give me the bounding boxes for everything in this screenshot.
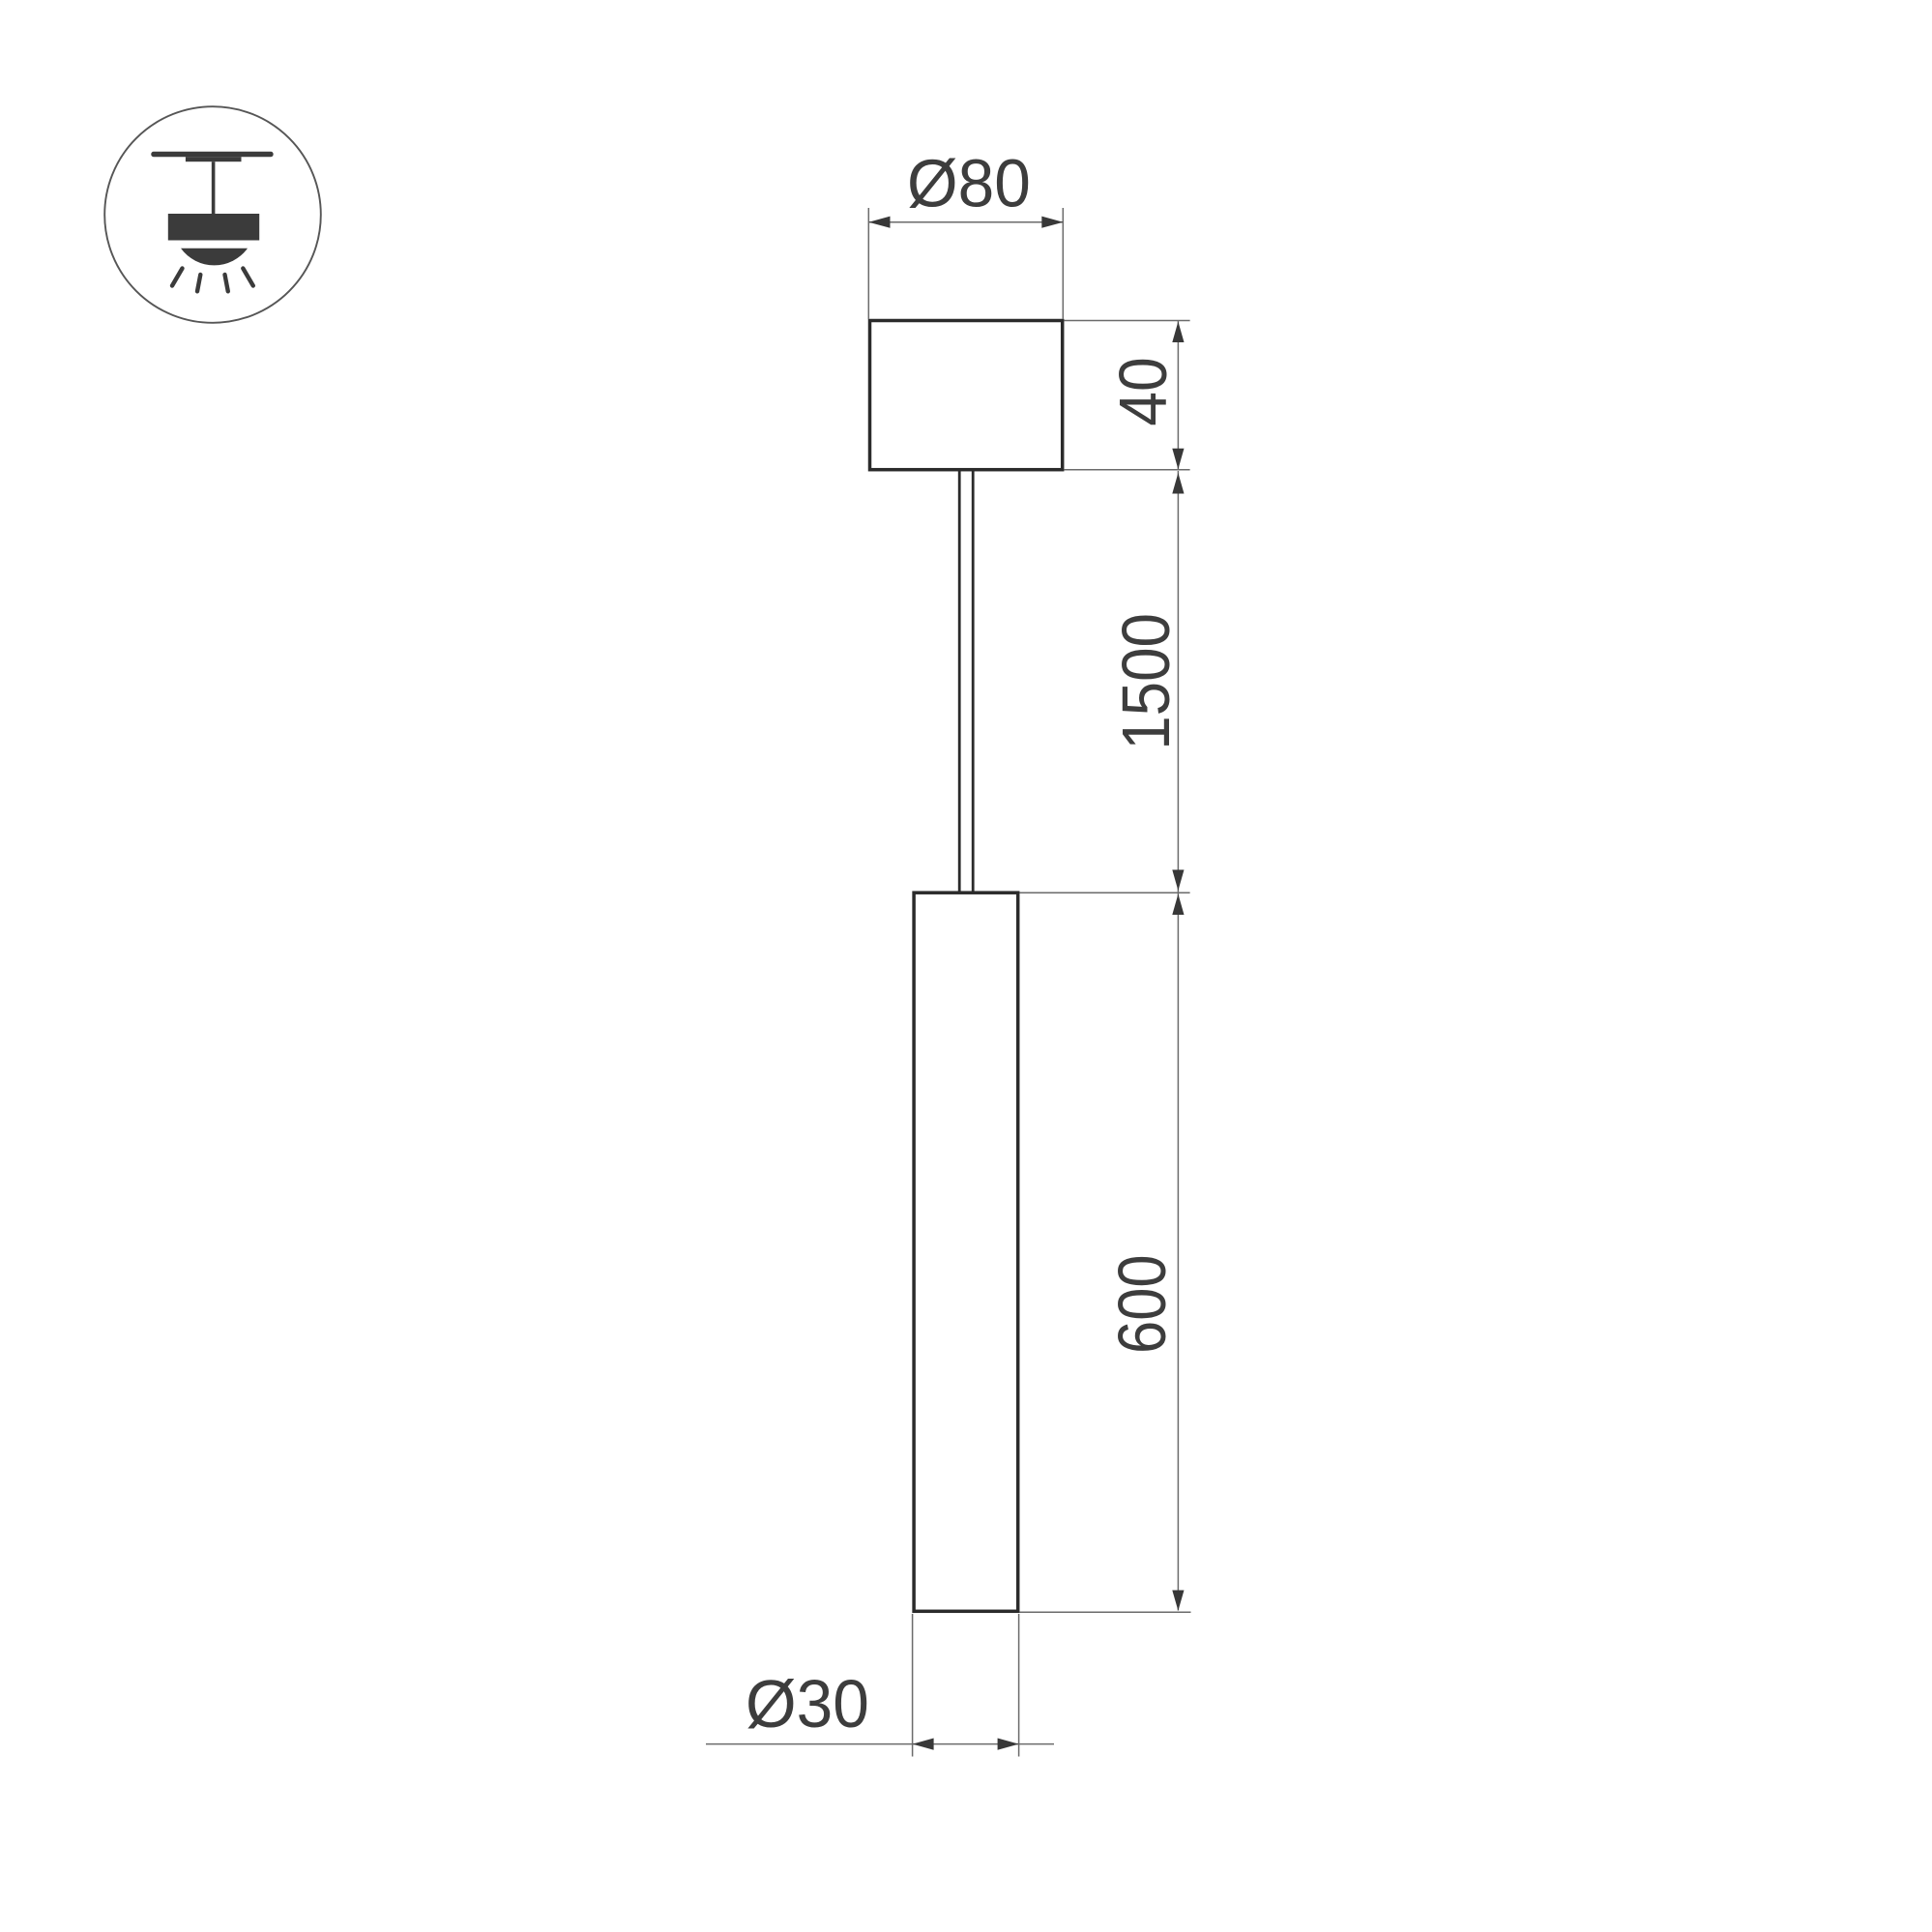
svg-text:1500: 1500: [1108, 613, 1184, 750]
svg-text:40: 40: [1105, 357, 1181, 426]
svg-text:600: 600: [1104, 1254, 1180, 1354]
svg-text:Ø80: Ø80: [907, 146, 1031, 221]
svg-text:Ø30: Ø30: [746, 1666, 869, 1742]
